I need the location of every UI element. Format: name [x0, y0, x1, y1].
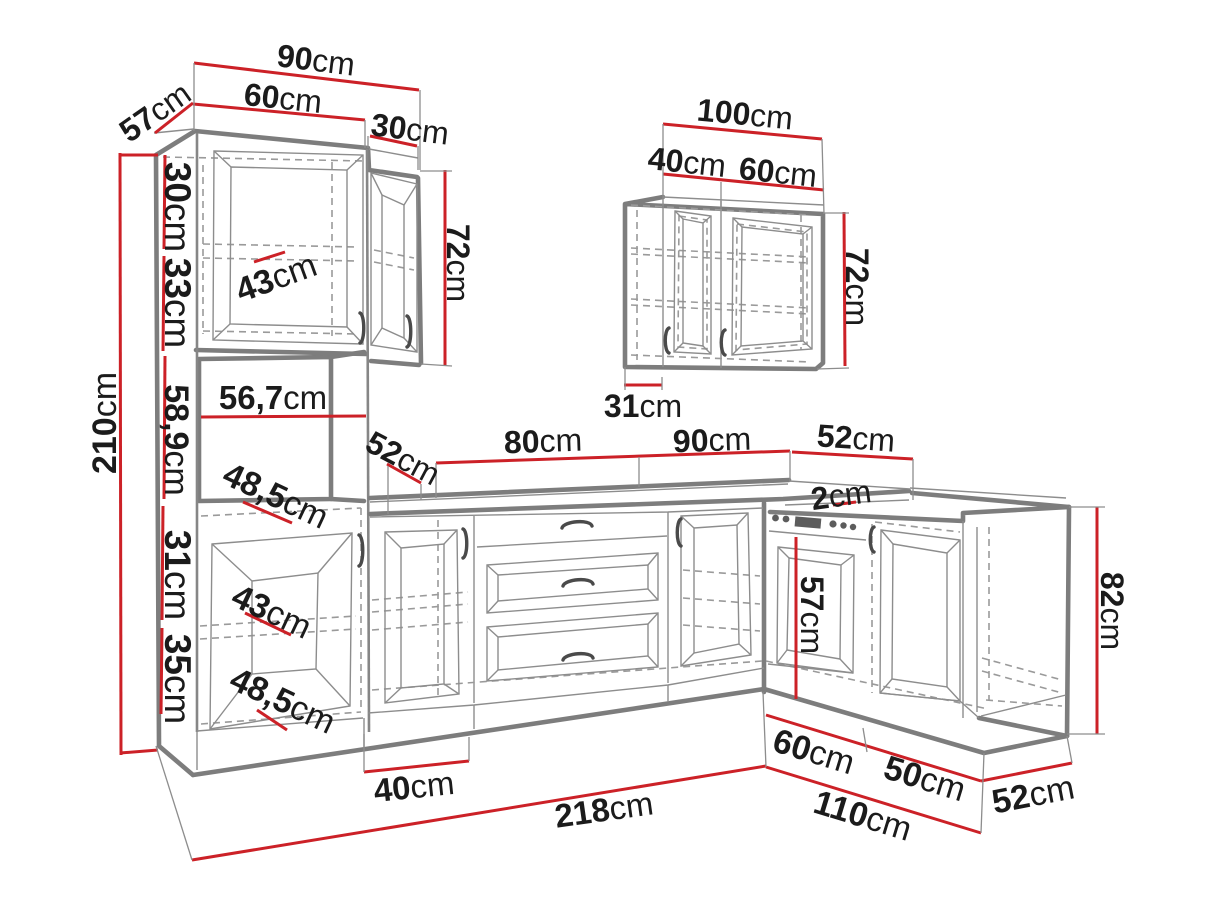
- svg-text:31cm: 31cm: [157, 530, 198, 620]
- svg-text:31cm: 31cm: [604, 388, 682, 424]
- svg-text:58,9cm: 58,9cm: [157, 384, 195, 496]
- svg-text:82cm: 82cm: [1094, 572, 1130, 650]
- svg-text:30cm: 30cm: [157, 162, 198, 252]
- svg-text:52cm: 52cm: [816, 417, 897, 458]
- svg-text:210cm: 210cm: [86, 372, 124, 474]
- svg-text:72cm: 72cm: [839, 248, 875, 326]
- svg-text:35cm: 35cm: [157, 634, 198, 724]
- svg-text:56,7cm: 56,7cm: [219, 379, 327, 416]
- svg-text:57cm: 57cm: [794, 576, 830, 654]
- svg-text:72cm: 72cm: [440, 224, 476, 302]
- svg-text:33cm: 33cm: [157, 258, 198, 348]
- svg-text:80cm: 80cm: [503, 422, 582, 461]
- svg-text:90cm: 90cm: [672, 421, 751, 460]
